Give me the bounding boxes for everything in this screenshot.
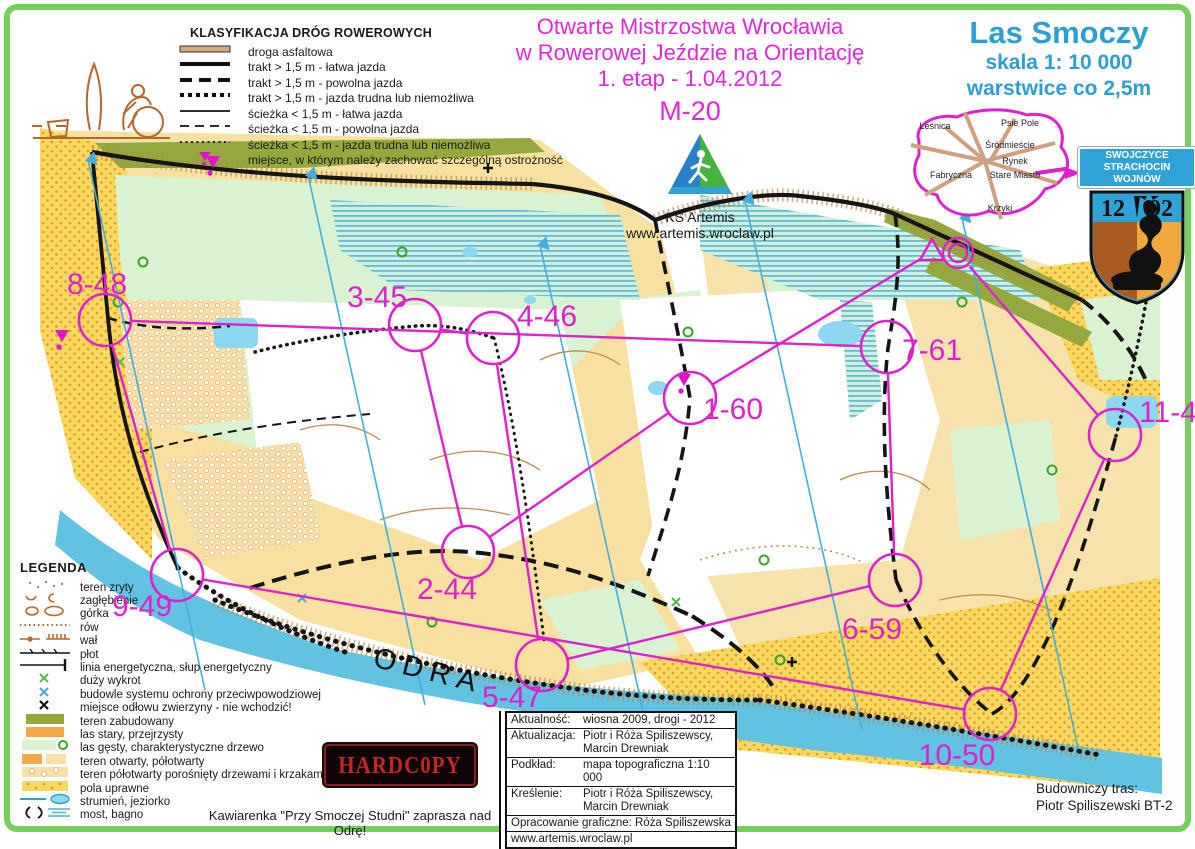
info-label: Aktualizacja: bbox=[511, 730, 583, 756]
district-label: Fabryczna bbox=[930, 170, 972, 180]
legend-item-label: budowle systemu ochrony przeciwpowodziow… bbox=[80, 689, 321, 701]
district-sign-line1: SWOJCZYCE bbox=[1105, 150, 1168, 162]
legend-item-label: miejsce odłowu zwierzyny - nie wchodzić! bbox=[80, 702, 292, 714]
city-inset-map: LeśnicaPsie PoleŚródmieścieRynekFabryczn… bbox=[905, 103, 1083, 235]
legend-item-label: duży wykrot bbox=[80, 675, 141, 687]
district-label: Leśnica bbox=[919, 121, 950, 131]
map-sheet: Otwarte Mistrzostwa Wrocławia w Rowerowe… bbox=[0, 0, 1195, 836]
info-label: Kreślenie: bbox=[511, 788, 583, 814]
legend-item-label: trakt > 1,5 m - jazda trudna lub niemożl… bbox=[248, 91, 474, 105]
map-name: Las Smoczy bbox=[930, 16, 1188, 50]
legend-item-label: teren zabudowany bbox=[80, 716, 174, 728]
legend-item-label: most, bagno bbox=[80, 809, 143, 821]
legend-item-label: ścieżka < 1,5 m - jazda trudna lub niemo… bbox=[248, 138, 490, 152]
district-label: Psie Pole bbox=[1001, 118, 1039, 128]
district-label: Krzyki bbox=[988, 203, 1013, 213]
crest-year-left: 12 bbox=[1101, 196, 1125, 222]
control-label-6-59: 6-59 bbox=[842, 613, 902, 647]
info-value: Piotr i Róża Spiliszewscy, Marcin Drewni… bbox=[583, 788, 713, 814]
legend-item-label: linia energetyczna, słup energetyczny bbox=[80, 662, 272, 674]
control-label-9-49: 9-49 bbox=[112, 590, 172, 624]
orienteering-map-page: { "colors":{"course_magenta":"#dd22cc","… bbox=[0, 0, 1195, 836]
legend-item-label: droga asfaltowa bbox=[248, 45, 333, 59]
map-info-box: Aktualność:wiosna 2009, drogi - 2012Aktu… bbox=[505, 711, 737, 849]
control-label-2-44: 2-44 bbox=[417, 573, 477, 607]
club-website: www.artemis.wroclaw.pl bbox=[610, 225, 790, 241]
district-label: Rynek bbox=[1002, 156, 1028, 166]
info-row: Opracowanie graficzne: Róża Spiliszewska bbox=[507, 816, 735, 832]
hardcopy-logo: HARDC0PY bbox=[322, 742, 478, 788]
cafe-note: Kawiarenka "Przy Smoczej Studni" zaprasz… bbox=[195, 808, 505, 838]
club-logo bbox=[610, 132, 790, 202]
course-builder-line2: Piotr Spiliszewski BT-2 bbox=[1036, 797, 1173, 814]
map-scale: skala 1: 10 000 bbox=[930, 50, 1188, 76]
district-label: Śródmieście bbox=[985, 140, 1035, 150]
control-label-7-61: 7-61 bbox=[902, 334, 962, 368]
club-name: KS Artemis bbox=[610, 209, 790, 225]
legend-item-label: ścieżka < 1,5 m - łatwa jazda bbox=[248, 107, 402, 121]
legend-item-label: strumień, jeziorko bbox=[80, 796, 170, 808]
legend-item-label: teren otwarty, półotwarty bbox=[80, 756, 204, 768]
legend-item-label: miejsce, w którym należy zachować szczeg… bbox=[248, 153, 563, 167]
info-row: Aktualizacja:Piotr i Róża Spiliszewscy, … bbox=[507, 729, 735, 758]
legend-item-label: trakt > 1,5 m - łatwa jazda bbox=[248, 60, 386, 74]
district-sign: SWOJCZYCE STRACHOCIN WOJNÓW bbox=[1078, 147, 1195, 188]
info-row: Kreślenie:Piotr i Róża Spiliszewscy, Mar… bbox=[507, 787, 735, 816]
map-title-block: Las Smoczy skala 1: 10 000 warstwice co … bbox=[930, 16, 1188, 102]
course-builder-credit: Budowniczy tras: Piotr Spiliszewski BT-2 bbox=[1036, 780, 1173, 814]
legend-item-label: rów bbox=[80, 622, 99, 634]
info-label: Podkład: bbox=[511, 759, 583, 785]
legend-item-label: teren półotwarty porośnięty drzewami i k… bbox=[80, 769, 325, 781]
legend-item-label: płot bbox=[80, 649, 99, 661]
legend-item-label: ścieżka < 1,5 m - powolna jazda bbox=[248, 122, 419, 136]
info-label: Aktualność: bbox=[511, 714, 583, 727]
info-row: Podkład:mapa topograficzna 1:10 000 bbox=[507, 758, 735, 787]
control-label-11-4: 11-4 bbox=[1139, 396, 1195, 430]
legend-item-label: las gęsty, charakterystyczne drzewo bbox=[80, 742, 264, 754]
control-label-3-45: 3-45 bbox=[347, 281, 407, 315]
control-label-8-48: 8-48 bbox=[67, 268, 127, 302]
bridge-marsh-icon bbox=[18, 805, 80, 825]
control-label-5-47: 5-47 bbox=[482, 681, 542, 715]
club-block: KS Artemis www.artemis.wroclaw.pl bbox=[610, 132, 790, 241]
legend-item-caution: miejsce, w którym należy zachować szczeg… bbox=[178, 153, 528, 169]
course-builder-line1: Budowniczy tras: bbox=[1036, 780, 1173, 797]
road-classification-legend: KLASYFIKACJA DRÓG ROWEROWYCH droga asfal… bbox=[178, 26, 528, 168]
legend-item-label: las stary, przejrzysty bbox=[80, 729, 183, 741]
info-value: Piotr i Róża Spiliszewscy, Marcin Drewni… bbox=[583, 730, 713, 756]
info-row: Aktualność:wiosna 2009, drogi - 2012 bbox=[507, 713, 735, 729]
legend-item-label: wał bbox=[80, 635, 97, 647]
legend-heading: LEGENDA bbox=[20, 560, 318, 575]
coat-of-arms: 12 92 bbox=[1087, 188, 1187, 311]
hardcopy-logo-text: HARDC0PY bbox=[338, 751, 462, 780]
legend-item-label: trakt > 1,5 m - powolna jazda bbox=[248, 76, 402, 90]
legend-item-label: górka bbox=[80, 608, 109, 620]
district-sign-line2: STRACHOCIN WOJNÓW bbox=[1080, 162, 1194, 186]
control-label-1-60: 1-60 bbox=[703, 393, 763, 427]
map-contour-interval: warstwice co 2,5m bbox=[930, 76, 1188, 102]
classification-heading: KLASYFIKACJA DRÓG ROWEROWYCH bbox=[190, 26, 528, 40]
info-value: mapa topograficzna 1:10 000 bbox=[583, 759, 731, 785]
info-row: www.artemis.wroclaw.pl bbox=[507, 832, 735, 847]
legend-item-label: pola uprawne bbox=[80, 783, 149, 795]
caution-icon bbox=[178, 150, 248, 170]
district-label: Stare Miasto bbox=[990, 170, 1041, 180]
info-value: wiosna 2009, drogi - 2012 bbox=[583, 714, 715, 727]
control-label-10-50: 10-50 bbox=[919, 739, 996, 773]
control-label-4-46: 4-46 bbox=[517, 300, 577, 334]
